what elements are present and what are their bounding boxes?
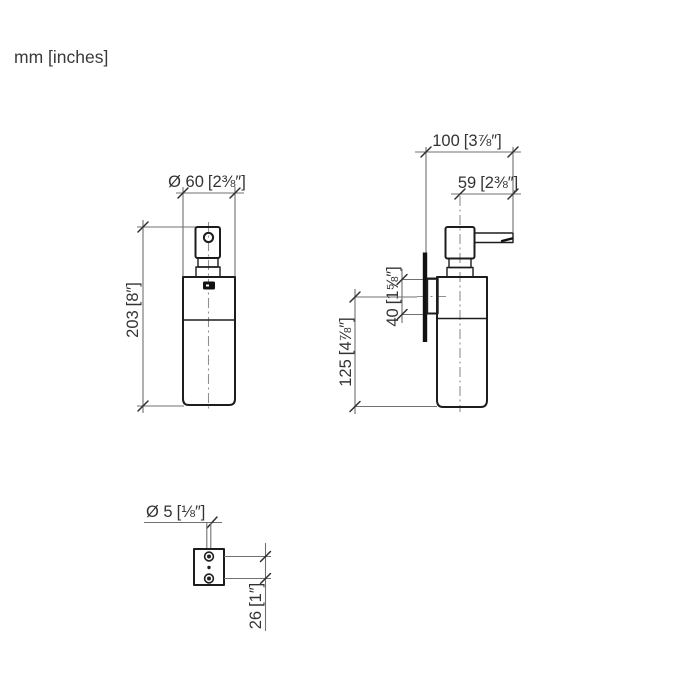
technical-drawing: mm [inches] Ø 60[2⅜″] 203[8″] [0,0,700,700]
drawing-canvas: mm [inches] Ø 60[2⅜″] 203[8″] [0,0,700,700]
dimension-label: 100[3⅞″] [432,132,501,150]
dimension-label: 203[8″] [124,282,142,338]
dimension-label: 26[1″] [247,583,265,630]
screw-hole-bottom-center [207,577,211,581]
dim-mm: 26 [247,611,265,629]
front-view: Ø 60[2⅜″] 203[8″] [124,173,246,413]
dimension-label: 125[4⅞″] [337,317,355,386]
dim-inches: [4⅞″] [337,317,355,355]
units-label: mm [inches] [14,47,108,67]
side-dimension-total-depth: 100[3⅞″] [415,132,521,253]
sensor-dot [206,285,209,287]
dim-inches: [8″] [124,282,142,306]
dim-mm: 40 [384,308,402,326]
side-view: 100[3⅞″] 59[2⅜″] 40[1⅝″] 125[4⅞″] [337,132,521,414]
plate-center-dot [207,566,210,569]
dim-mm: Ø 5 [146,503,173,521]
dim-inches: [3⅞″] [464,132,502,150]
mounting-dimension-hole-spacing: 26[1″] [224,543,271,631]
dim-mm: 203 [124,310,142,338]
dim-inches: [1⅝″] [384,266,402,304]
dim-inches: [⅛″] [177,503,206,521]
mounting-dimension-hole-diameter: Ø 5[⅛″] [144,503,222,549]
dim-mm: Ø 60 [168,173,204,191]
dimension-label: Ø 60[2⅜″] [168,173,246,191]
spout [475,233,514,243]
dim-mm: 59 [458,174,476,192]
dimension-label: Ø 5[⅛″] [146,503,205,521]
mounting-view: Ø 5[⅛″] 26[1″] [144,503,271,631]
dim-mm: 125 [337,359,355,387]
dim-inches: [2⅜″] [208,173,246,191]
front-dimension-diameter: Ø 60[2⅜″] [168,173,246,277]
spout-outlet [502,239,512,242]
front-dimension-height: 203[8″] [124,220,196,413]
dimension-label: 59[2⅜″] [458,174,518,192]
dim-mm: 100 [432,132,460,150]
front-dispenser [183,222,235,412]
screw-hole-top-center [207,555,211,559]
side-dispenser [423,196,513,412]
side-dimension-spout-projection: 59[2⅜″] [451,174,521,199]
dim-inches: [2⅜″] [480,174,518,192]
side-dimension-mounting-height: 125[4⅞″] [337,289,446,414]
mounting-plate [194,549,224,585]
dim-inches: [1″] [247,583,265,607]
